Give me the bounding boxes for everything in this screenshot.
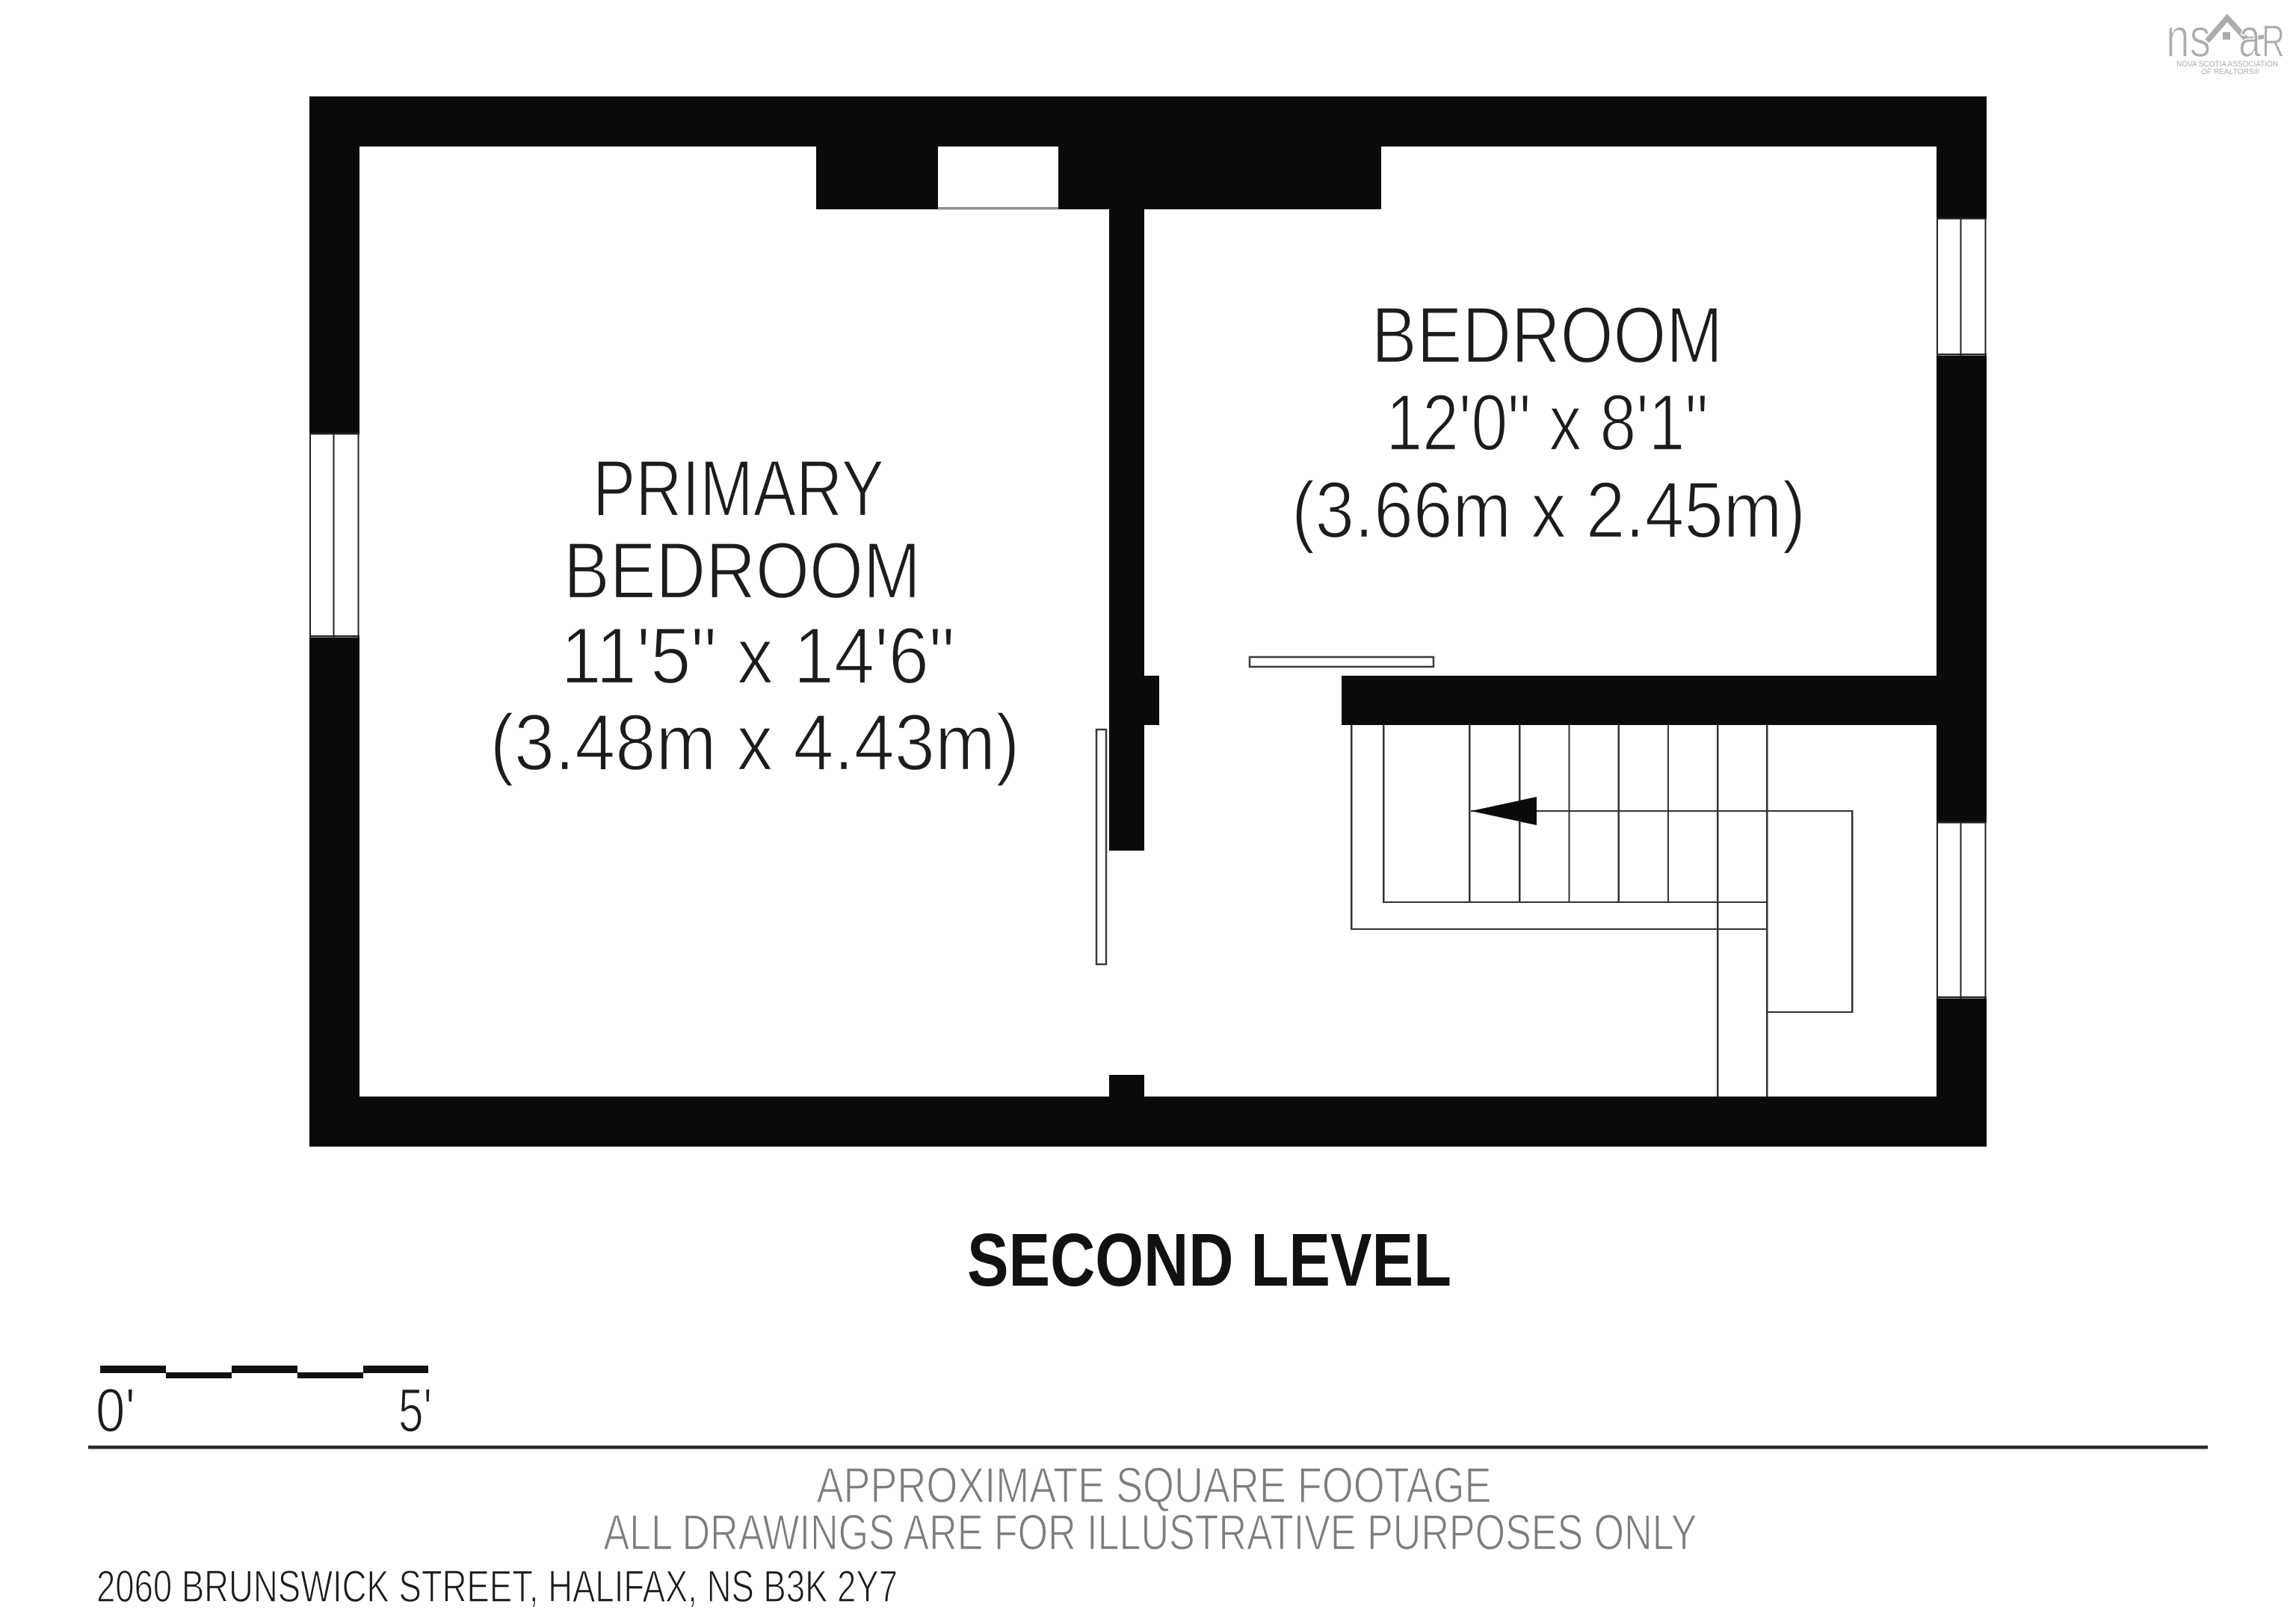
svg-text:5': 5' (398, 1375, 432, 1445)
svg-text:(3.66m x 2.45m): (3.66m x 2.45m) (1291, 465, 1806, 555)
svg-text:BEDROOM: BEDROOM (1371, 290, 1723, 380)
svg-text:11'5" x 14'6": 11'5" x 14'6" (561, 611, 955, 700)
svg-text:SECOND LEVEL: SECOND LEVEL (967, 1218, 1451, 1302)
svg-text:12'0" x 8'1": 12'0" x 8'1" (1386, 377, 1709, 467)
svg-text:(3.48m x 4.43m): (3.48m x 4.43m) (490, 697, 1020, 787)
svg-text:ALL DRAWINGS ARE FOR ILLUSTRAT: ALL DRAWINGS ARE FOR ILLUSTRATIVE PURPOS… (604, 1505, 1697, 1561)
svg-text:0': 0' (96, 1375, 135, 1445)
svg-text:2060 BRUNSWICK STREET, HALIFAX: 2060 BRUNSWICK STREET, HALIFAX, NS B3K 2… (96, 1561, 898, 1612)
svg-text:OF REALTORS®: OF REALTORS® (2201, 68, 2260, 76)
svg-text:BEDROOM: BEDROOM (564, 525, 921, 615)
svg-text:PRIMARY: PRIMARY (593, 443, 884, 533)
svg-text:R: R (2262, 16, 2285, 67)
